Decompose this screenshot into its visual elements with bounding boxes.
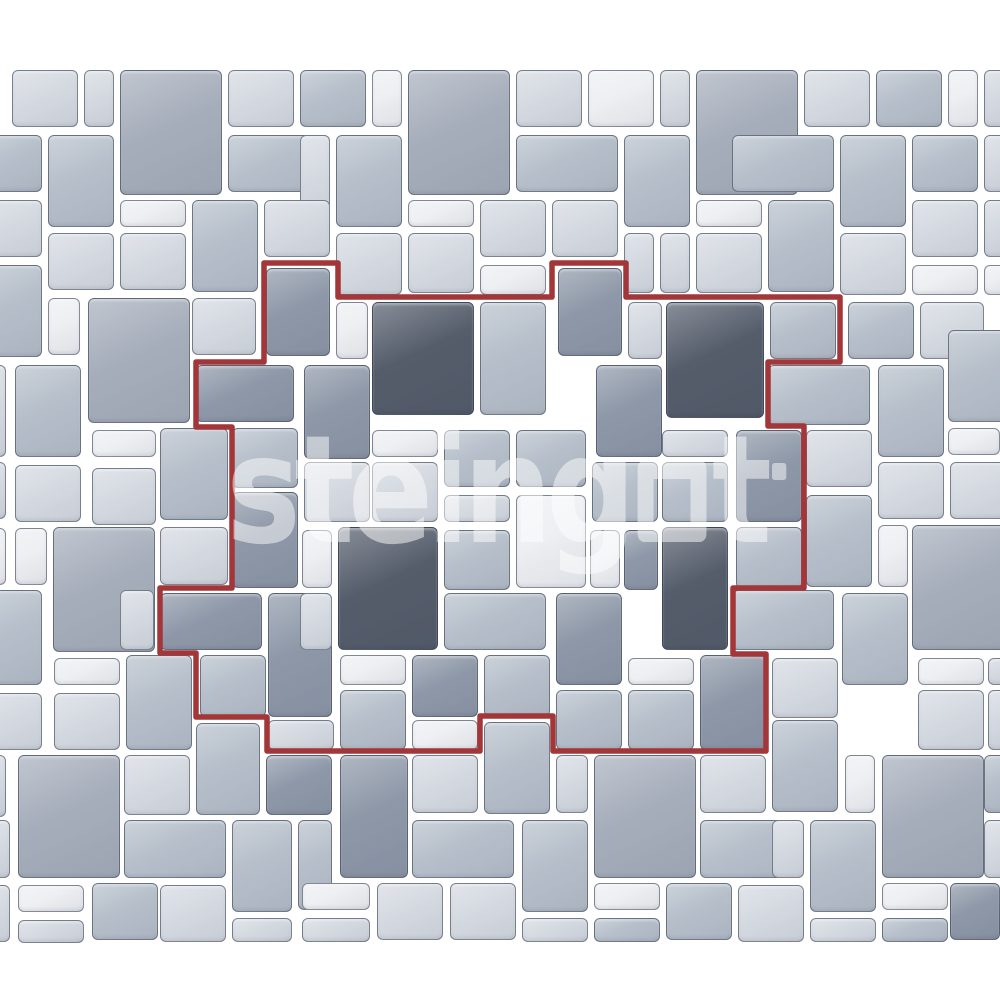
paving-tile — [0, 265, 42, 357]
paving-tile — [120, 233, 186, 290]
paving-tile — [772, 658, 838, 718]
paving-tile — [840, 233, 906, 295]
paving-tile — [0, 528, 6, 585]
paving-tile — [0, 693, 42, 750]
paving-tile — [444, 593, 546, 650]
paving-tile — [768, 365, 870, 425]
paving-tile — [92, 883, 158, 940]
paving-tile — [340, 755, 408, 878]
paving-tile — [48, 298, 80, 355]
paving-tile — [736, 430, 802, 522]
paving-tile — [736, 527, 802, 589]
paving-tile — [192, 298, 256, 355]
paving-tile — [804, 70, 870, 127]
paving-tile — [340, 690, 406, 750]
paving-tile — [336, 135, 402, 227]
paving-tile — [912, 135, 978, 192]
paving-tile — [918, 690, 984, 750]
paving-tile — [984, 135, 1000, 192]
paving-tile — [628, 658, 694, 685]
paving-tile — [377, 883, 443, 940]
paving-tile — [192, 200, 258, 292]
paving-tile — [54, 693, 120, 750]
paving-tile — [48, 233, 114, 290]
paving-tile — [444, 530, 510, 590]
paving-tile — [516, 430, 586, 487]
paving-tile — [772, 720, 838, 812]
paving-tile — [882, 918, 948, 942]
paving-tile — [15, 465, 81, 522]
paving-tile — [160, 428, 228, 520]
paving-tile — [588, 70, 654, 127]
paving-tile — [770, 302, 836, 359]
paving-tile — [948, 330, 1000, 422]
paving-tile — [732, 590, 834, 650]
paving-tile — [592, 462, 658, 522]
paving-tile — [984, 70, 1000, 127]
paving-tile — [196, 723, 260, 815]
paving-tile — [700, 755, 766, 813]
paving-tile — [768, 200, 834, 292]
paving-tile — [18, 755, 120, 878]
paving-tile — [810, 918, 876, 942]
paving-tile — [340, 655, 406, 685]
paving-tile — [484, 722, 550, 814]
paving-tile — [0, 755, 6, 817]
paving-tile — [732, 135, 834, 192]
paving-tile — [840, 135, 906, 227]
paving-tile — [772, 820, 804, 878]
paving-tile — [918, 658, 984, 685]
tile-layer — [0, 0, 1000, 1000]
paving-tile — [0, 200, 42, 257]
paving-tile — [480, 302, 546, 415]
paving-tile — [300, 70, 366, 127]
paving-tile — [304, 462, 370, 522]
paving-tile — [304, 365, 370, 459]
paving-tile — [624, 233, 654, 293]
paving-tile — [232, 820, 292, 912]
paving-tile — [266, 268, 330, 356]
paving-tile — [15, 528, 47, 585]
paving-tile — [984, 200, 1000, 257]
paving-tile — [264, 200, 330, 257]
paving-tile — [0, 590, 42, 685]
paving-tile — [878, 462, 944, 519]
paving-tile — [950, 462, 1000, 519]
paving-tile — [124, 755, 190, 815]
paving-tile — [556, 755, 588, 813]
paving-tile — [662, 527, 728, 650]
paving-tile — [590, 530, 620, 588]
paving-tile — [842, 593, 908, 685]
paving-tile — [558, 268, 622, 356]
paving-tile — [484, 655, 550, 717]
paving-tile — [268, 720, 334, 750]
paving-pattern-canvas: steingt — [0, 0, 1000, 1000]
paving-tile — [984, 820, 1000, 878]
paving-tile — [878, 525, 908, 587]
paving-tile — [84, 70, 114, 127]
paving-tile — [660, 233, 690, 293]
paving-tile — [444, 495, 510, 522]
paving-tile — [882, 883, 948, 910]
paving-tile — [412, 755, 478, 813]
paving-tile — [624, 530, 658, 590]
paving-tile — [696, 200, 762, 227]
paving-tile — [302, 918, 370, 942]
paving-tile — [522, 820, 588, 912]
paving-tile — [628, 302, 662, 359]
paving-tile — [408, 233, 474, 293]
paving-tile — [372, 430, 438, 457]
paving-tile — [594, 918, 660, 942]
paving-tile — [120, 590, 154, 650]
paving-tile — [54, 658, 120, 685]
paving-tile — [18, 885, 84, 912]
paving-tile — [12, 70, 78, 127]
paving-tile — [696, 233, 762, 293]
paving-tile — [594, 755, 696, 878]
paving-tile — [232, 428, 298, 488]
paving-tile — [878, 365, 944, 457]
paving-tile — [88, 298, 190, 423]
paving-tile — [662, 462, 728, 522]
paving-tile — [196, 365, 294, 422]
paving-tile — [984, 265, 1000, 295]
paving-tile — [882, 755, 984, 878]
paving-tile — [0, 135, 42, 192]
paving-tile — [666, 883, 732, 940]
paving-tile — [950, 883, 1000, 940]
paving-tile — [628, 690, 694, 750]
paving-tile — [988, 690, 1000, 750]
paving-tile — [0, 365, 6, 457]
paving-tile — [666, 302, 764, 418]
paving-tile — [120, 70, 222, 195]
paving-tile — [266, 755, 332, 815]
paving-tile — [912, 265, 978, 295]
paving-tile — [408, 70, 510, 195]
paving-tile — [876, 70, 942, 127]
paving-tile — [120, 200, 186, 227]
paving-tile — [336, 233, 402, 295]
paving-tile — [412, 655, 478, 717]
paving-tile — [92, 430, 156, 457]
paving-tile — [372, 70, 402, 127]
paving-tile — [15, 365, 81, 457]
paving-tile — [160, 885, 226, 942]
paving-tile — [556, 690, 622, 750]
paving-tile — [556, 593, 622, 685]
paving-tile — [984, 755, 1000, 813]
paving-tile — [522, 918, 588, 942]
paving-tile — [200, 655, 266, 717]
paving-tile — [948, 428, 1000, 455]
paving-tile — [126, 655, 192, 750]
paving-tile — [516, 70, 582, 127]
paving-tile — [806, 495, 872, 587]
paving-tile — [624, 135, 690, 227]
paving-tile — [48, 135, 114, 227]
paving-tile — [0, 462, 6, 519]
paving-tile — [302, 883, 370, 910]
paving-tile — [912, 200, 978, 257]
paving-tile — [810, 820, 876, 912]
paving-tile — [912, 525, 1000, 650]
paving-tile — [412, 720, 478, 750]
paving-tile — [848, 302, 914, 359]
paving-tile — [700, 655, 766, 750]
paving-tile — [336, 302, 368, 359]
paving-tile — [408, 200, 474, 227]
paving-tile — [738, 885, 804, 942]
paving-tile — [444, 430, 510, 487]
paving-tile — [412, 820, 514, 878]
paving-tile — [372, 462, 438, 522]
paving-tile — [662, 430, 728, 457]
paving-tile — [0, 885, 10, 942]
paving-tile — [300, 593, 332, 650]
paving-tile — [594, 883, 660, 910]
paving-tile — [516, 495, 586, 588]
paving-tile — [988, 658, 1000, 685]
paving-tile — [660, 70, 690, 127]
paving-tile — [160, 527, 228, 585]
paving-tile — [845, 755, 875, 813]
paving-tile — [302, 530, 332, 588]
paving-tile — [552, 200, 618, 257]
paving-tile — [450, 883, 516, 940]
paving-tile — [0, 820, 10, 878]
paving-tile — [232, 492, 298, 588]
paving-tile — [480, 265, 546, 295]
paving-tile — [948, 70, 978, 127]
paving-tile — [124, 820, 226, 878]
paving-tile — [232, 918, 292, 942]
paving-tile — [596, 365, 662, 457]
paving-tile — [516, 135, 618, 192]
paving-tile — [18, 920, 84, 943]
paving-tile — [372, 302, 474, 415]
paving-tile — [806, 430, 872, 487]
paving-tile — [92, 468, 156, 525]
paving-tile — [338, 527, 438, 650]
paving-tile — [480, 200, 546, 257]
paving-tile — [160, 593, 262, 650]
paving-tile — [228, 70, 294, 127]
